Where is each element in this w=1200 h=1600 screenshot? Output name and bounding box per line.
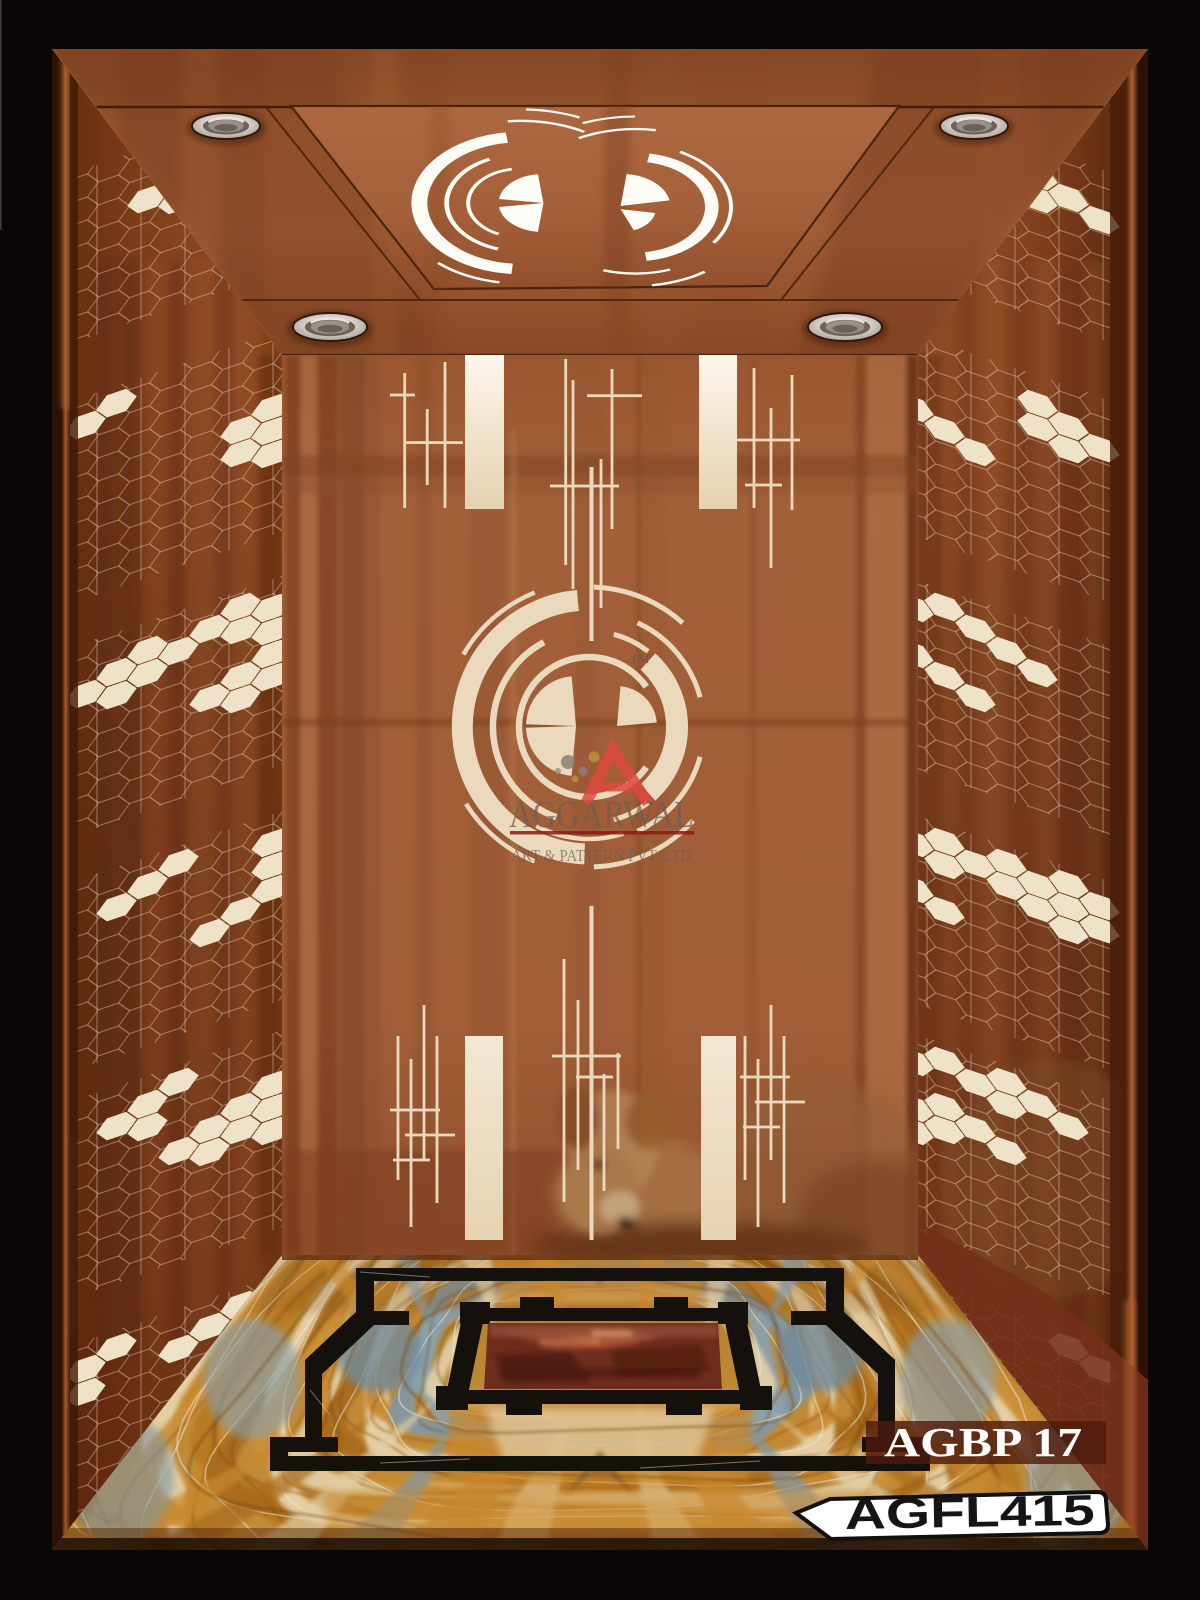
svg-text:AGFL415: AGFL415 [844,1487,1095,1539]
svg-text:TM: TM [630,652,649,666]
svg-text:AGGARWAL: AGGARWAL [509,794,694,836]
svg-text:AGBP 17: AGBP 17 [884,1419,1082,1465]
svg-text:ART & PATTERN PVT. LTD.: ART & PATTERN PVT. LTD. [511,846,695,865]
